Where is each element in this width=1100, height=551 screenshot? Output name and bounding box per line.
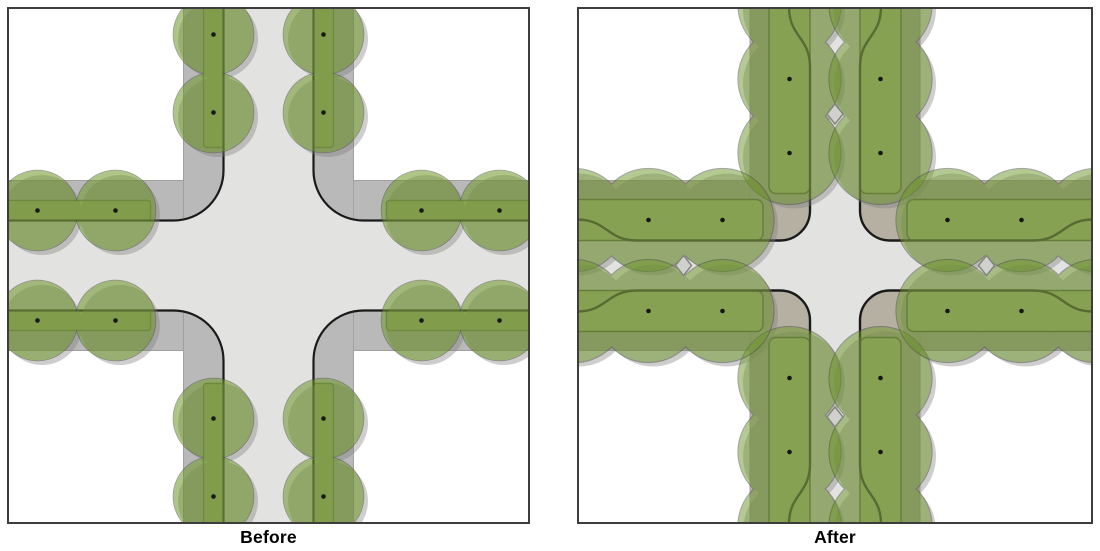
after-panel — [577, 7, 1093, 524]
after-label: After — [577, 527, 1093, 548]
street-trees-before-after-figure: Before After — [0, 0, 1100, 551]
before-panel — [7, 7, 530, 524]
before-label: Before — [7, 527, 530, 548]
after-intersection-diagram — [577, 7, 1093, 524]
before-intersection-diagram — [7, 7, 530, 524]
